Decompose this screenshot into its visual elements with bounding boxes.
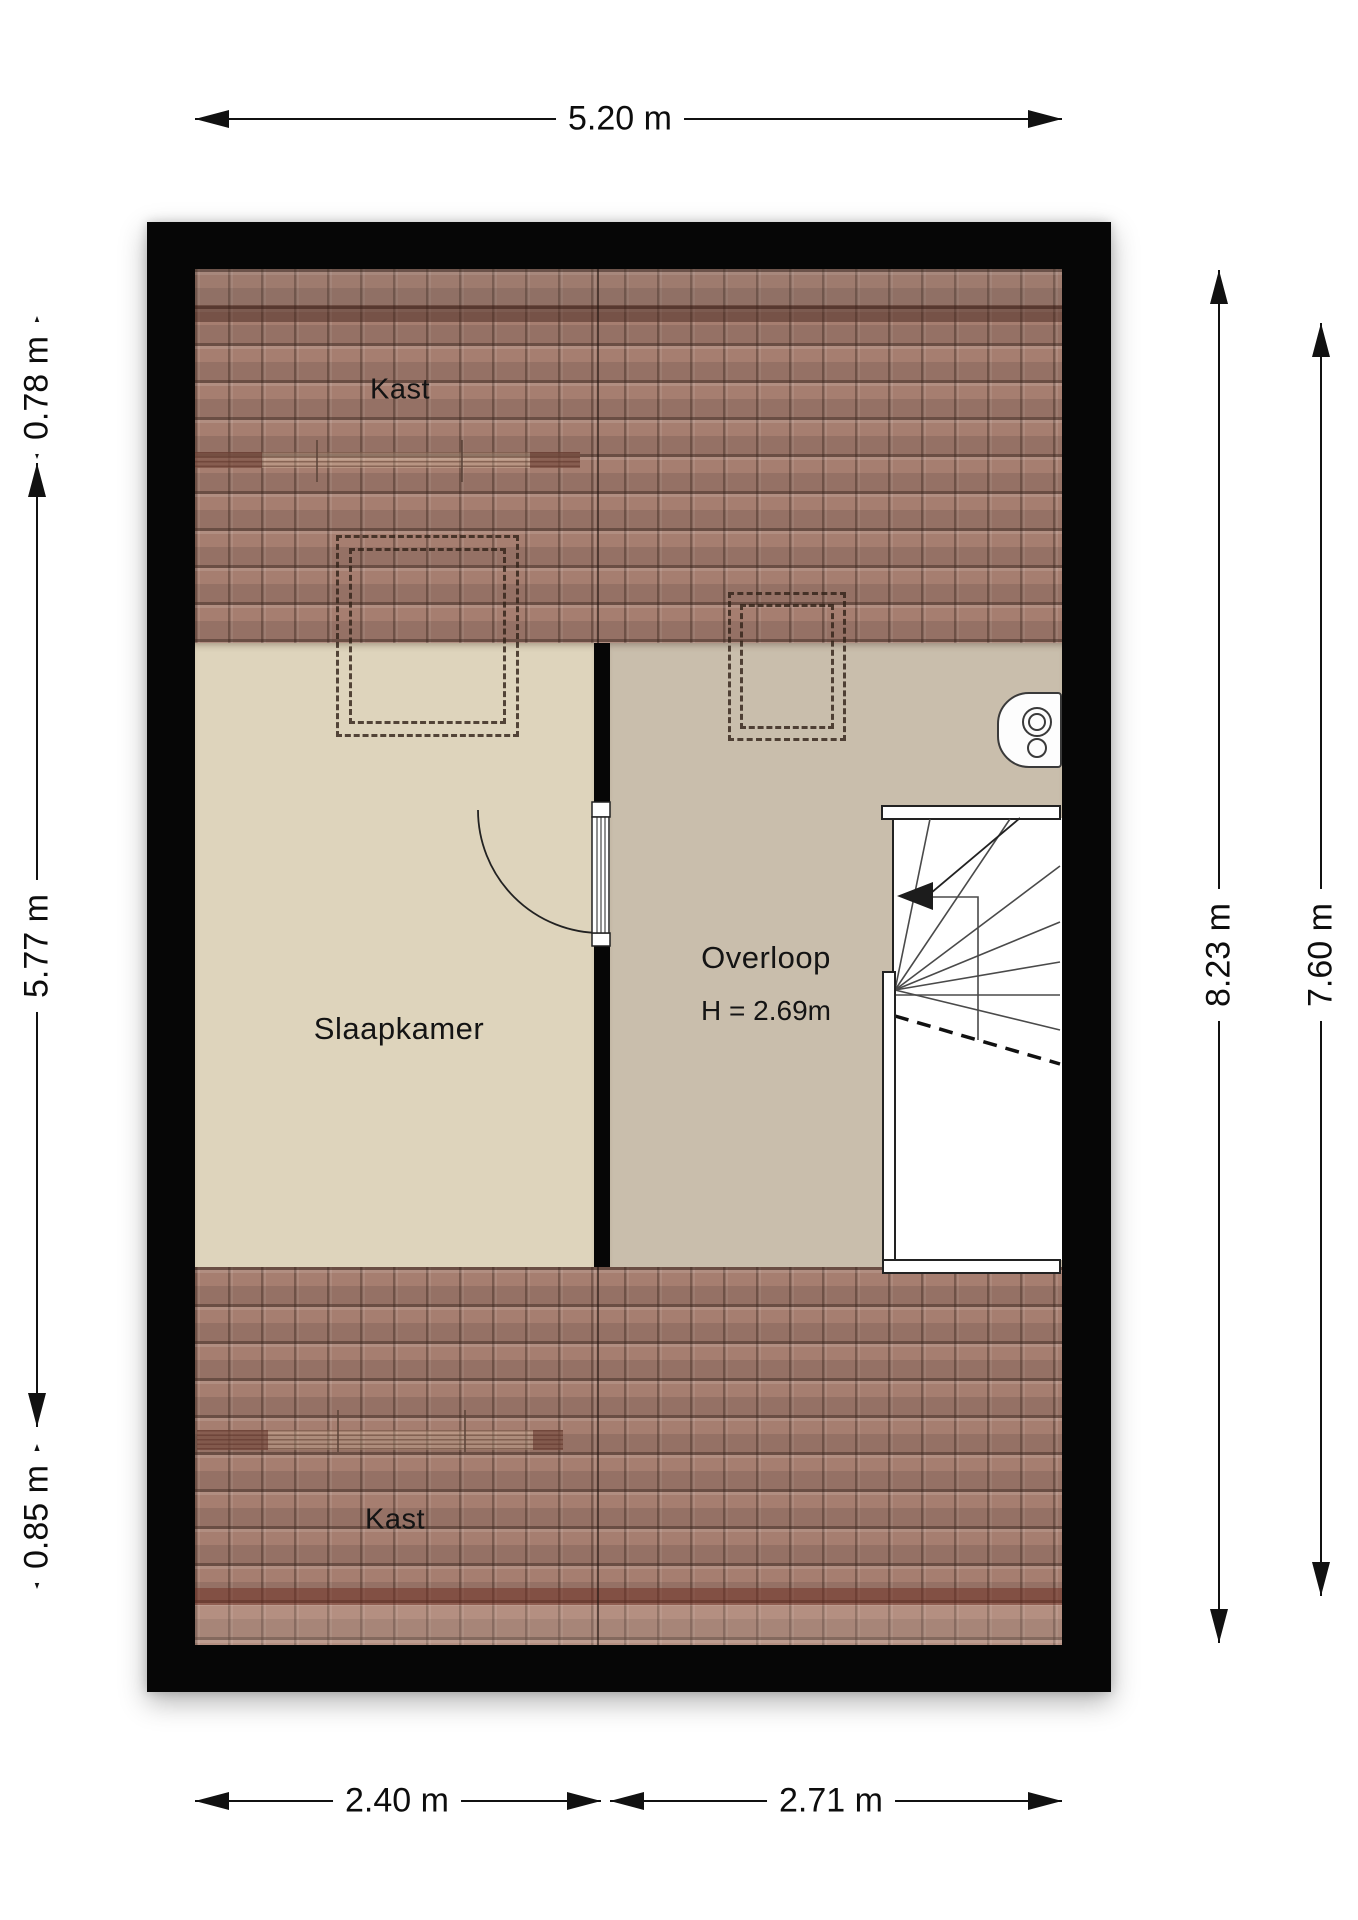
room-label-overloop: Overloop bbox=[701, 940, 831, 976]
knee-wall-top-cap-right bbox=[530, 452, 580, 468]
dim-bottom-left: 2.40 m bbox=[333, 1780, 461, 1823]
knee-wall-bottom bbox=[197, 1430, 563, 1450]
floor-plan-canvas: Kast Slaapkamer Overloop H = 2.69m Kast … bbox=[0, 0, 1358, 1920]
dim-left-middle: 5.77 m bbox=[16, 880, 59, 1012]
roof-bottom-fold-line bbox=[597, 1267, 599, 1645]
room-label-kast-top: Kast bbox=[370, 374, 430, 407]
dim-left-top: 0.78 m bbox=[16, 322, 59, 454]
dormer-outline-right-inner bbox=[740, 604, 834, 729]
dormer-outline-left-inner bbox=[349, 548, 506, 724]
roof-top-eaves-strip bbox=[195, 269, 1062, 305]
dim-right-inner: 7.60 m bbox=[1300, 889, 1343, 1021]
boiler-valve-icon bbox=[1027, 738, 1047, 758]
dim-bottom-right: 2.71 m bbox=[767, 1780, 895, 1823]
room-label-slaapkamer: Slaapkamer bbox=[314, 1011, 484, 1047]
knee-wall-bottom-cap-left bbox=[197, 1430, 268, 1450]
dim-top-width: 5.20 m bbox=[556, 98, 684, 141]
roof-bottom-eaves-strip bbox=[195, 1605, 1062, 1645]
knee-wall-top bbox=[195, 452, 580, 468]
roof-top-fold-line bbox=[597, 269, 599, 643]
knee-wall-top-cap-left bbox=[195, 452, 262, 468]
knee-wall-bottom-cap-right bbox=[533, 1430, 563, 1450]
roof-top-ridge-line bbox=[195, 305, 1062, 322]
room-label-kast-bottom: Kast bbox=[365, 1504, 425, 1537]
ceiling-height-label: H = 2.69m bbox=[701, 995, 831, 1027]
boiler-dial-icon bbox=[1022, 707, 1052, 737]
roof-bottom-ridge-line bbox=[195, 1588, 1062, 1605]
dim-right-outer: 8.23 m bbox=[1198, 889, 1241, 1021]
dim-left-bottom: 0.85 m bbox=[16, 1451, 59, 1583]
divider-wall-upper bbox=[594, 643, 610, 802]
boiler-icon bbox=[997, 692, 1062, 768]
divider-wall-lower bbox=[594, 945, 610, 1267]
